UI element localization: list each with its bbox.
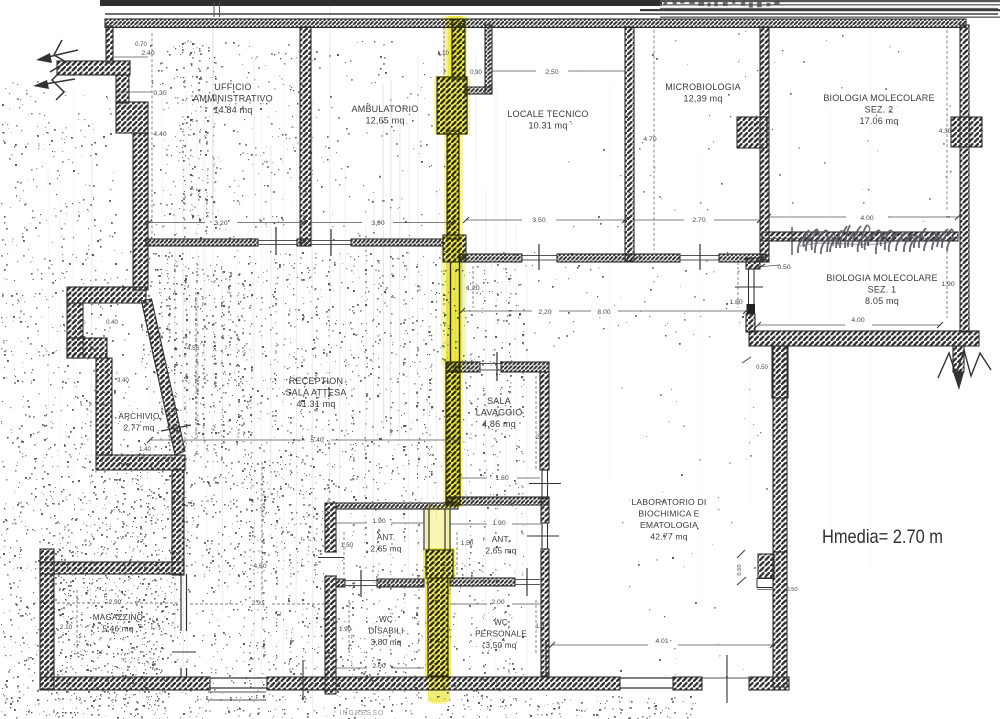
svg-text:WC: WC	[494, 618, 508, 627]
svg-text:2.91: 2.91	[251, 600, 264, 607]
svg-text:0,30: 0,30	[153, 90, 166, 97]
svg-text:2.10: 2.10	[60, 624, 73, 631]
svg-text:BIOLOGIA MOLECOLARE: BIOLOGIA MOLECOLARE	[826, 273, 937, 283]
svg-text:ARCHIVIO: ARCHIVIO	[118, 412, 159, 421]
svg-text:2.40: 2.40	[141, 50, 154, 57]
svg-text:0.50: 0.50	[756, 365, 768, 371]
svg-text:12,39 mq: 12,39 mq	[683, 94, 722, 104]
svg-text:10.31 mq: 10.31 mq	[528, 121, 567, 131]
svg-text:AMBULATORIO: AMBULATORIO	[352, 104, 419, 114]
svg-text:2,7: 2,7	[536, 435, 545, 441]
svg-text:1.40: 1.40	[139, 447, 151, 453]
svg-text:1,20: 1,20	[466, 285, 479, 292]
svg-text:0.40: 0.40	[106, 320, 118, 326]
svg-text:UFFICIO: UFFICIO	[214, 82, 251, 92]
svg-text:INGRESSO: INGRESSO	[340, 710, 385, 717]
svg-text:2.00: 2.00	[372, 663, 385, 670]
svg-text:2,65 mq: 2,65 mq	[486, 547, 517, 556]
svg-text:SEZ. 2: SEZ. 2	[865, 105, 894, 115]
svg-text:2.00: 2.00	[491, 599, 504, 606]
svg-text:2,50: 2,50	[545, 69, 558, 76]
svg-text:WC: WC	[379, 615, 393, 624]
svg-text:4.01: 4.01	[655, 638, 668, 645]
svg-text:42.77 mq: 42.77 mq	[650, 532, 687, 542]
svg-text:0.50: 0.50	[737, 564, 743, 575]
svg-text:2,65 mq: 2,65 mq	[371, 545, 402, 554]
svg-text:8.05 mq: 8.05 mq	[865, 296, 899, 306]
svg-text:2.70: 2.70	[692, 217, 705, 224]
svg-text:4.55: 4.55	[187, 345, 200, 352]
svg-text:BIOCHIMICA E: BIOCHIMICA E	[638, 509, 699, 519]
svg-text:SEZ. 1: SEZ. 1	[868, 285, 897, 295]
svg-text:1.90: 1.90	[372, 518, 385, 525]
svg-text:SALA: SALA	[487, 396, 511, 406]
svg-text:MICROBIOLOGIA: MICROBIOLOGIA	[665, 82, 741, 92]
svg-text:4.00: 4.00	[860, 215, 873, 222]
svg-text:3,90: 3,90	[371, 220, 384, 227]
svg-text:3.20: 3.20	[214, 220, 227, 227]
svg-text:AMMINISTRATIVO: AMMINISTRATIVO	[193, 94, 273, 104]
svg-text:2,20: 2,20	[538, 309, 551, 316]
svg-text:1.9: 1.9	[536, 624, 545, 630]
svg-text:3.50: 3.50	[532, 217, 545, 224]
svg-text:ANT.: ANT.	[377, 533, 396, 542]
svg-text:4,86 mq: 4,86 mq	[482, 419, 516, 429]
svg-text:1.90: 1.90	[941, 281, 954, 288]
svg-text:SALA ATTESA: SALA ATTESA	[285, 388, 346, 398]
svg-text:1.80: 1.80	[729, 299, 742, 306]
svg-text:4.00: 4.00	[851, 317, 864, 324]
svg-text:14.84 mq: 14.84 mq	[213, 105, 252, 115]
svg-text:2.77 mq: 2.77 mq	[124, 424, 155, 433]
svg-text:DISABILI: DISABILI	[368, 627, 403, 636]
svg-text:3,80 mq: 3,80 mq	[371, 638, 402, 647]
svg-text:5.40: 5.40	[310, 437, 323, 444]
svg-text:RECEPTION: RECEPTION	[289, 376, 343, 386]
svg-text:BIOLOGIA MOLECOLARE: BIOLOGIA MOLECOLARE	[823, 93, 934, 103]
svg-text:EMATOLOGIA: EMATOLOGIA	[640, 520, 698, 530]
svg-text:1,50: 1,50	[341, 542, 354, 549]
svg-text:4.30: 4.30	[939, 128, 952, 135]
svg-text:1.90: 1.90	[492, 520, 505, 527]
svg-text:4,60: 4,60	[253, 563, 266, 570]
svg-text:0.70: 0.70	[135, 42, 147, 48]
svg-text:3,50 mq: 3,50 mq	[486, 641, 517, 650]
svg-text:Hmedia= 2.70 m: Hmedia= 2.70 m	[822, 526, 943, 548]
svg-text:41.31 mq: 41.31 mq	[296, 399, 335, 409]
svg-text:8.00: 8.00	[597, 309, 610, 316]
svg-text:3.40: 3.40	[117, 378, 129, 384]
svg-text:1.10: 1.10	[437, 51, 449, 57]
svg-text:LABORATORIO DI: LABORATORIO DI	[631, 497, 706, 507]
svg-text:12,65 mq: 12,65 mq	[365, 116, 404, 126]
svg-text:0.50: 0.50	[786, 587, 797, 593]
svg-text:17.06 mq: 17.06 mq	[859, 116, 898, 126]
svg-text:5,46 mq: 5,46 mq	[103, 625, 134, 634]
svg-text:4.40: 4.40	[153, 131, 166, 138]
svg-text:1.90: 1.90	[339, 626, 352, 633]
svg-text:0,90: 0,90	[470, 70, 482, 76]
svg-text:PERSONALE: PERSONALE	[475, 630, 527, 639]
svg-text:1.80: 1.80	[495, 475, 508, 482]
svg-text:LOCALE TECNICO: LOCALE TECNICO	[507, 109, 588, 119]
svg-text:1,50: 1,50	[461, 540, 474, 547]
svg-text:4.70: 4.70	[643, 136, 656, 143]
svg-text:MAGAZZINO: MAGAZZINO	[93, 613, 143, 622]
svg-text:ANT,: ANT,	[492, 535, 511, 544]
svg-text:0.50: 0.50	[777, 264, 790, 271]
svg-text:2,90: 2,90	[109, 599, 122, 606]
svg-text:LAVAGGIO: LAVAGGIO	[476, 408, 523, 418]
